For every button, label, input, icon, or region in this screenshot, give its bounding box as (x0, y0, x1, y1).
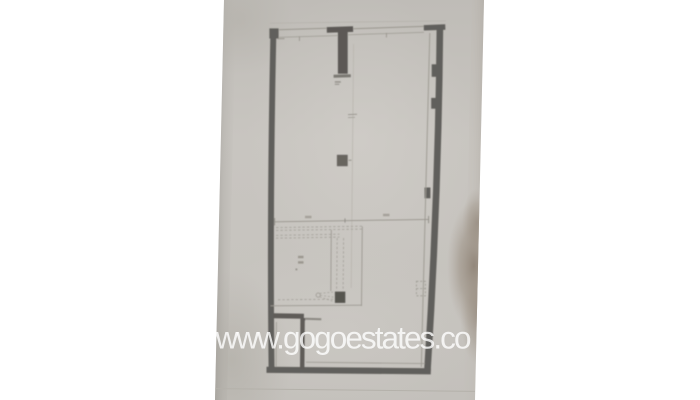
svg-text:www.gogoestates.co: www.gogoestates.co (215, 320, 472, 356)
